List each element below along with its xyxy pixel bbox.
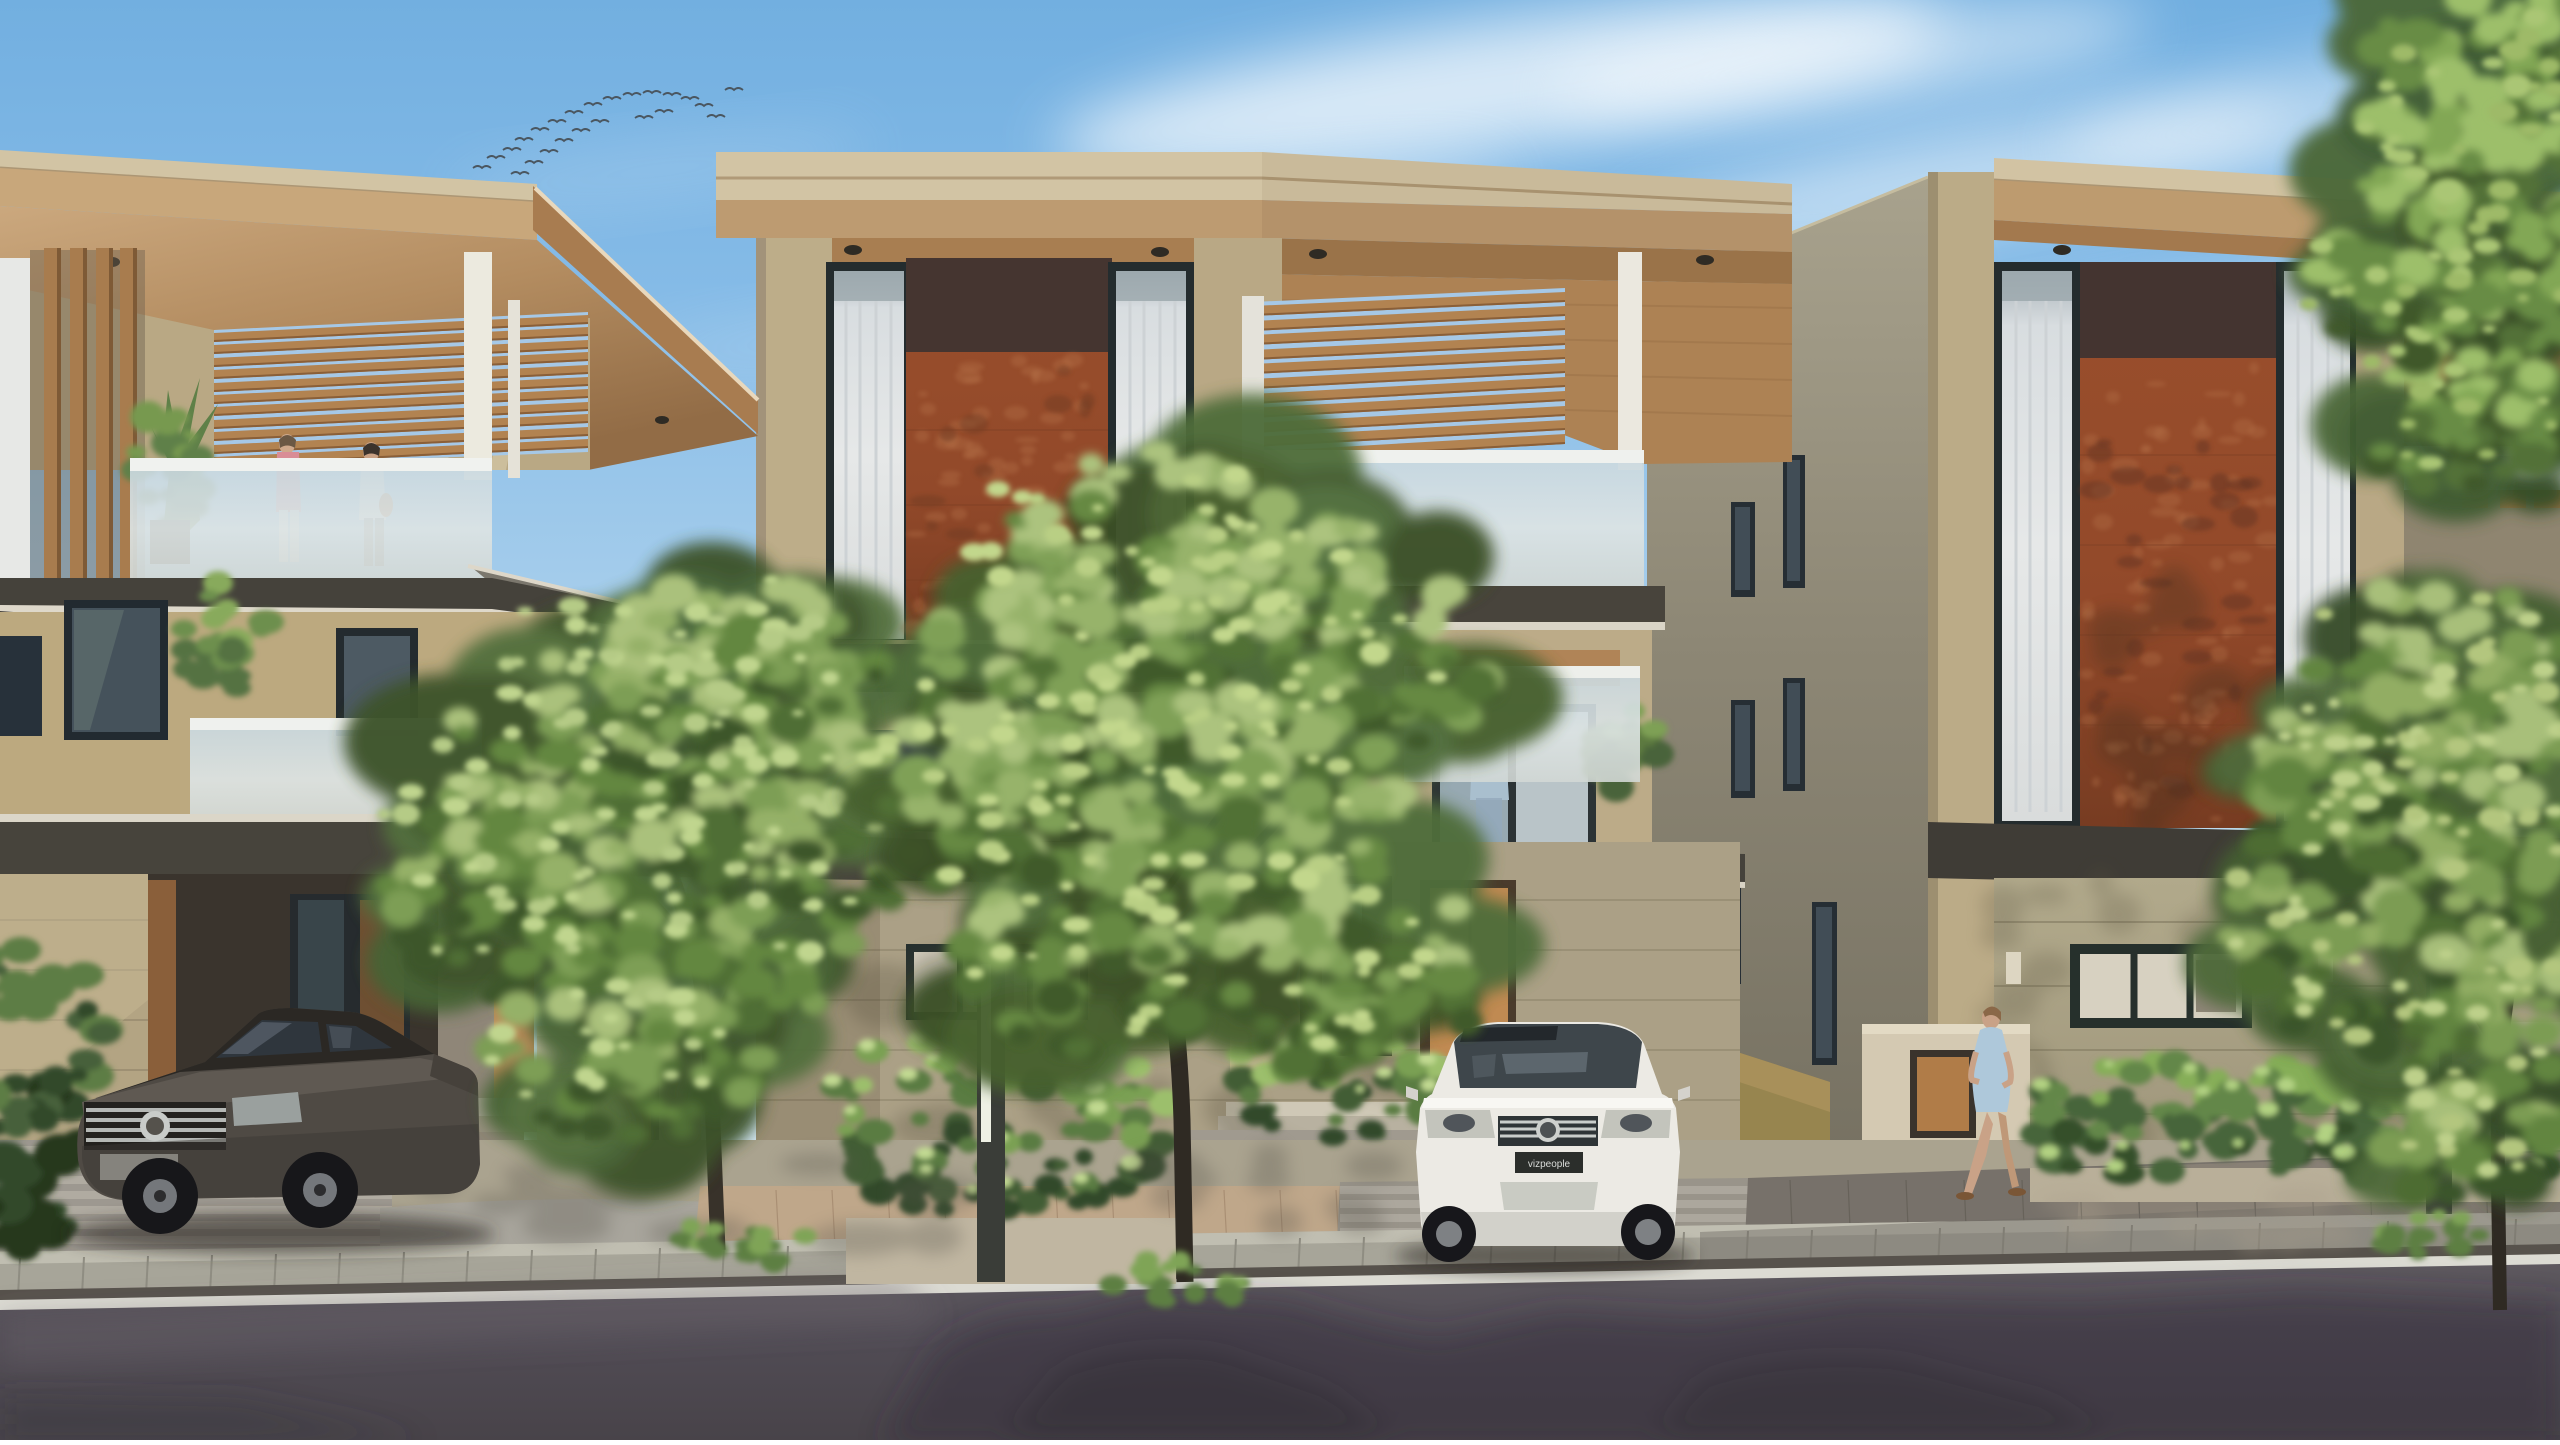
- svg-text:vizpeople: vizpeople: [1528, 1159, 1571, 1170]
